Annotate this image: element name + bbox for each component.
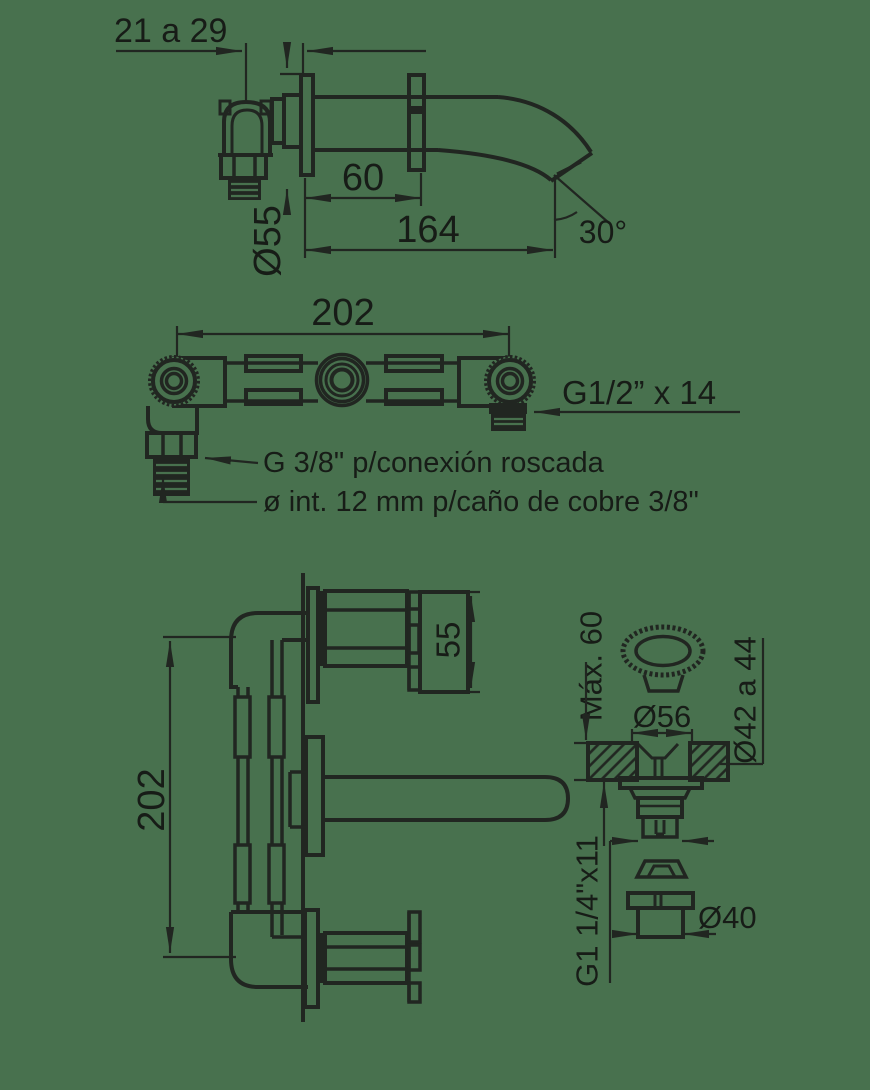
supply-elbow-top xyxy=(231,613,308,687)
inlet-hex-facets xyxy=(163,433,181,457)
cartridge-tab xyxy=(409,625,419,653)
wall-flange xyxy=(301,75,313,175)
drain-knob-neck xyxy=(644,675,683,691)
cartridge-tab xyxy=(409,912,420,942)
dim-60-label: 60 xyxy=(342,157,384,199)
dim-body-thread-label: G1 1/4"x11 xyxy=(570,835,605,987)
dim-flange-diameter-label: Ø55 xyxy=(247,205,289,277)
cartridge-tab xyxy=(409,945,420,970)
dim-hole-range-label: Ø42 a 44 xyxy=(728,636,763,764)
dim-ticks xyxy=(163,637,236,957)
inlet-elbow-left xyxy=(148,406,197,433)
countertop-right xyxy=(690,743,728,780)
spout-clamp-top xyxy=(409,75,424,108)
drain-funnel xyxy=(638,744,678,758)
valve-ring-right xyxy=(489,360,531,402)
spout-clamp-bottom xyxy=(409,112,424,170)
valve-body-side-bottom xyxy=(325,933,407,983)
angle-arc xyxy=(554,212,577,220)
valve-flange-top xyxy=(308,588,318,702)
drain-coupling-split xyxy=(655,893,661,908)
hex-nut xyxy=(221,155,266,178)
valve-flange-bottom xyxy=(305,910,318,1007)
drain-tailpiece xyxy=(638,908,683,937)
spout-tip-inner-line xyxy=(557,162,581,174)
dim-wall-range-label: 21 a 29 xyxy=(114,12,227,50)
inlet-hex-nut xyxy=(147,433,196,457)
copper-pipe-note: ø int. 12 mm p/caño de cobre 3/8" xyxy=(263,486,699,518)
outlet-thread-label: G1/2” x 14 xyxy=(562,374,716,411)
valve-ring-left xyxy=(153,360,195,402)
compression-sleeve xyxy=(269,845,284,903)
valve-body-lines xyxy=(325,610,407,648)
cartridge-tab xyxy=(409,983,420,1002)
compression-sleeve xyxy=(269,697,284,757)
installed-side-view: 202 55 xyxy=(131,573,568,1022)
drain-flapper xyxy=(637,861,686,877)
drain-body-cylinder xyxy=(638,798,682,817)
center-union-outer xyxy=(317,355,368,406)
threaded-connection-note: G 3/8" p/conexión roscada xyxy=(263,447,605,479)
threaded-note-leader xyxy=(205,458,258,463)
dim-knob-diameter-label: Ø56 xyxy=(633,699,692,734)
valve-body-side-top xyxy=(325,591,407,666)
manifold-front-view: 202 G1/2” x 14 G 3/8" p/co xyxy=(147,292,740,518)
popup-drain-view: Ø56 Máx. 60 Ø42 a 44 G1 1/4"x11 Ø40 xyxy=(570,611,764,987)
dim-164-label: 164 xyxy=(396,209,459,251)
drain-rod xyxy=(656,820,664,834)
spout-flange-side xyxy=(306,737,323,855)
dim-202-side-label: 202 xyxy=(131,768,173,831)
dim-202-label: 202 xyxy=(311,292,374,334)
valve-body-lines xyxy=(325,947,407,969)
dim-ticks xyxy=(574,743,588,780)
dim-55-label: 55 xyxy=(430,622,467,659)
spout-side-view: 21 a 29 Ø55 60 164 xyxy=(114,12,627,277)
outlet-band xyxy=(489,403,527,414)
supply-elbow-bottom xyxy=(231,912,308,987)
dim-tail-diameter-label: Ø40 xyxy=(698,900,757,935)
inlet-thread-stub xyxy=(153,457,190,496)
spout-inner-curve xyxy=(438,150,551,180)
drain-knob-inner xyxy=(636,637,690,666)
compression-sleeve xyxy=(235,697,250,757)
outlet-thread-stub xyxy=(491,414,526,431)
countertop-left xyxy=(588,743,637,780)
spout-outer-curve xyxy=(498,97,591,152)
dim-angle-label: 30° xyxy=(579,214,627,250)
inlet-elbow-inner xyxy=(232,110,262,155)
union-nut xyxy=(284,95,301,147)
spout-tube-side xyxy=(323,777,568,820)
hex-nut-facets xyxy=(234,155,255,178)
faucet-technical-drawing: 21 a 29 Ø55 60 164 xyxy=(0,0,870,1090)
technical-drawing-page: 21 a 29 Ø55 60 164 xyxy=(0,0,870,1090)
dim-max-thickness-label: Máx. 60 xyxy=(574,611,609,721)
compression-sleeve xyxy=(235,845,250,903)
